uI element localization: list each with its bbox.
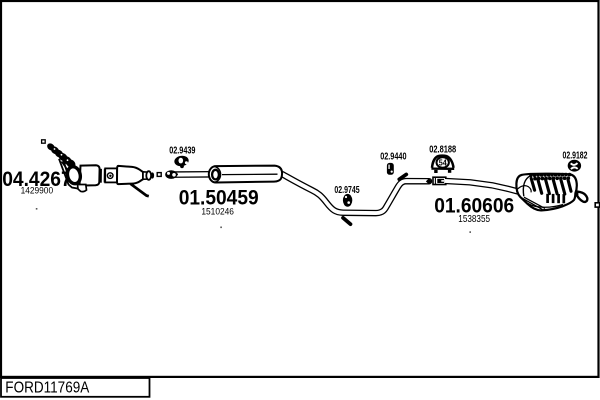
svg-text:FORD11769A: FORD11769A (5, 380, 89, 397)
svg-text:02.9182: 02.9182 (563, 150, 588, 161)
svg-text:54: 54 (439, 158, 447, 168)
svg-text:02.9440: 02.9440 (380, 152, 407, 163)
svg-text:02.9439: 02.9439 (169, 145, 196, 156)
svg-text:1510246: 1510246 (201, 205, 234, 216)
svg-text:1538355: 1538355 (458, 214, 490, 225)
svg-text:02.8188: 02.8188 (429, 145, 456, 156)
svg-text:1429900: 1429900 (21, 185, 54, 196)
